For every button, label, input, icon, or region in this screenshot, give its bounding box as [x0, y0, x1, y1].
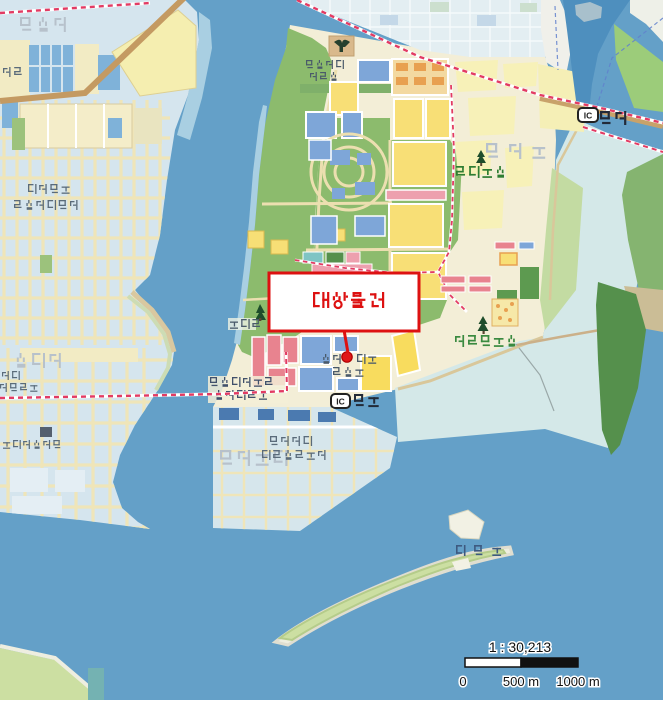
- svg-text:1000 m: 1000 m: [556, 674, 599, 689]
- svg-text:1 : 30,213: 1 : 30,213: [489, 639, 551, 655]
- svg-text:0: 0: [459, 674, 466, 689]
- svg-text:IC: IC: [584, 111, 593, 121]
- svg-text:500 m: 500 m: [503, 674, 539, 689]
- svg-text:IC: IC: [336, 397, 345, 407]
